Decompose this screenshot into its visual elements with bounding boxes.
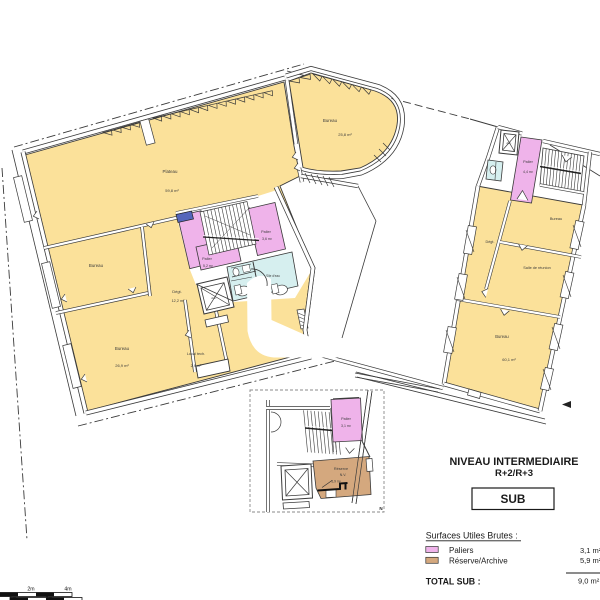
svg-text:Réserve/Archive: Réserve/Archive [449,557,508,566]
svg-text:Palier: Palier [261,230,271,234]
svg-text:Palier: Palier [341,417,351,421]
svg-text:Bureau: Bureau [115,346,130,351]
svg-text:3,1 m²: 3,1 m² [580,546,600,555]
svg-text:60,1 m²: 60,1 m² [502,357,516,362]
svg-text:3,6 m²: 3,6 m² [262,237,273,241]
svg-text:9,0 m²: 9,0 m² [578,577,600,586]
svg-text:R+2/R+3: R+2/R+3 [495,468,533,479]
svg-text:Asc.: Asc. [506,141,511,145]
svg-text:Dégt.: Dégt. [172,289,182,294]
svg-text:NIVEAU INTERMEDIAIRE: NIVEAU INTERMEDIAIRE [450,456,579,468]
svg-text:Surfaces Utiles Brutes :: Surfaces Utiles Brutes : [426,531,518,541]
svg-text:12,2 m²: 12,2 m² [172,299,186,303]
svg-text:1m: 1m [10,596,17,600]
svg-text:Palier: Palier [523,160,533,164]
svg-text:59,8 m²: 59,8 m² [165,188,179,193]
svg-text:Bureau: Bureau [495,334,509,339]
svg-text:Bureau: Bureau [323,118,338,123]
svg-text:Bureau: Bureau [550,217,562,221]
svg-text:4m: 4m [64,587,71,593]
svg-text:Local tech.: Local tech. [187,352,205,356]
svg-text:2,9 m²: 2,9 m² [191,364,202,368]
svg-text:N: N [379,506,382,511]
svg-text:SUB: SUB [501,492,526,506]
svg-text:Paliers: Paliers [449,546,473,555]
svg-text:Bureau: Bureau [89,263,104,268]
svg-text:Plateau: Plateau [163,169,178,174]
svg-text:3m: 3m [46,596,53,600]
svg-text:26,9 m²: 26,9 m² [115,363,129,368]
svg-text:3,1 m²: 3,1 m² [341,424,352,428]
svg-text:2m: 2m [27,587,34,593]
svg-text:Asc.: Asc. [211,296,217,300]
svg-text:N.V.: N.V. [340,473,347,477]
svg-text:4,4 m²: 4,4 m² [523,170,534,174]
svg-text:Salle de réunion: Salle de réunion [523,266,550,270]
svg-text:TOTAL SUB :: TOTAL SUB : [426,577,481,587]
svg-text:Palier: Palier [202,257,212,261]
svg-text:5,9 m²: 5,9 m² [580,556,600,565]
svg-text:5,2 m²: 5,2 m² [203,264,214,268]
svg-text:Dégt.: Dégt. [485,240,494,244]
svg-text:25,8 m²: 25,8 m² [338,132,352,137]
svg-text:Réserve: Réserve [334,467,348,471]
